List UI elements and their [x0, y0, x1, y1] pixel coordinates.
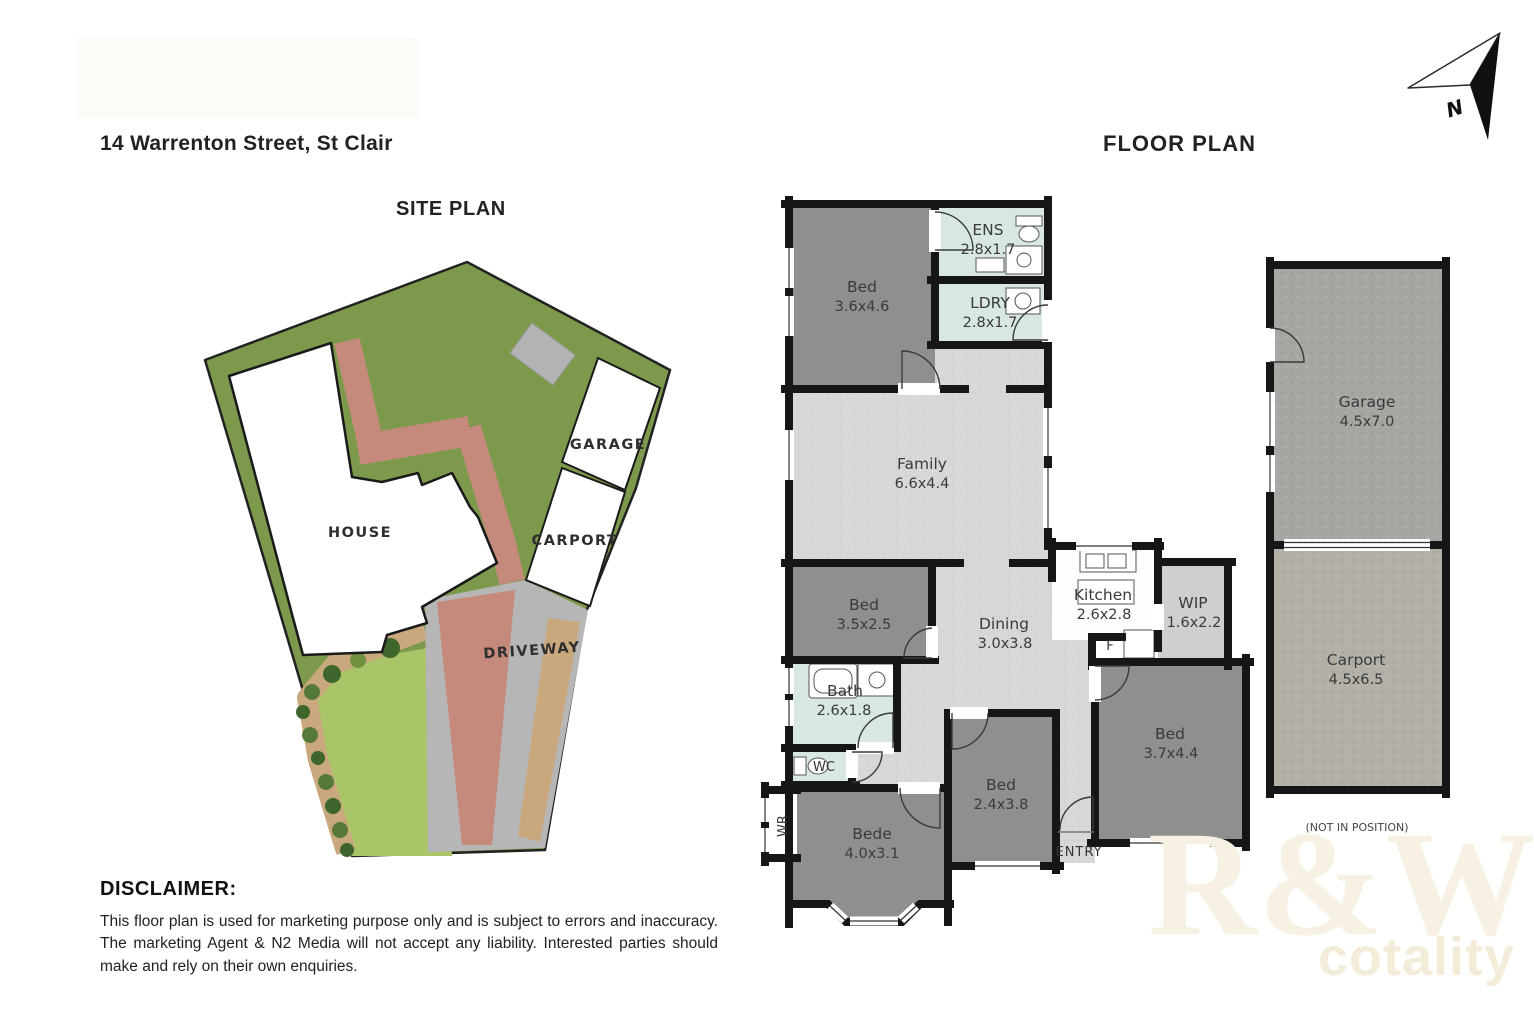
wc-cistern: [794, 757, 806, 775]
floorplan-page: { "header": { "address": "14 Warrenton S…: [0, 0, 1534, 1023]
floor-plan: Bed 3.6x4.6 ENS 2.8x1.7 LDRY 2.8x1.7 Fam…: [755, 185, 1460, 940]
carport-label: Carport: [1327, 651, 1385, 669]
bed1-label: Bed: [847, 278, 877, 296]
garage-dims: 4.5x7.0: [1340, 414, 1395, 430]
disclaimer-title: DISCLAIMER:: [100, 878, 718, 901]
ens-label: ENS: [972, 221, 1003, 239]
ens-cistern: [1016, 216, 1042, 226]
disclaimer-body: This floor plan is used for marketing pu…: [100, 911, 718, 978]
wc-label: WC: [813, 760, 835, 775]
ens-toilet: [1019, 226, 1039, 242]
entry-label: ENTRY: [1055, 845, 1102, 860]
garage-label: Garage: [1339, 393, 1396, 411]
bed4-dims: 3.7x4.4: [1144, 746, 1199, 762]
hall-top-floor: [935, 345, 1048, 389]
kitchen-sink-2: [1108, 554, 1126, 568]
kitchen-label: Kitchen: [1074, 586, 1132, 604]
site-plan-title: SITE PLAN: [396, 198, 506, 221]
carport-dims: 4.5x6.5: [1329, 672, 1384, 688]
not-in-position-note: (NOT IN POSITION): [1305, 821, 1408, 834]
ldry-dims: 2.8x1.7: [963, 315, 1018, 331]
bed1-dims: 3.6x4.6: [835, 299, 890, 315]
hall-floor: [897, 660, 948, 748]
family-label: Family: [897, 455, 947, 473]
bed1-floor: [789, 204, 935, 389]
ldry-basin: [1015, 293, 1031, 309]
property-address: 14 Warrenton Street, St Clair: [100, 132, 393, 156]
north-label: N: [1443, 94, 1467, 122]
ens-shower: [976, 258, 1004, 272]
site-garage-label: GARAGE: [570, 437, 646, 453]
dining-dims: 3.0x3.8: [978, 636, 1033, 652]
wardrobe-label: WR: [776, 815, 791, 837]
kitchen-dims: 2.6x2.8: [1077, 607, 1132, 623]
ens-basin: [1017, 253, 1031, 267]
north-arrow-icon: N: [1398, 22, 1508, 147]
bed3-label: Bed: [986, 776, 1016, 794]
bath-dims: 2.6x1.8: [817, 703, 872, 719]
fridge-space: [1124, 630, 1154, 658]
dining-label: Dining: [979, 615, 1029, 633]
site-carport-label: CARPORT: [532, 533, 619, 549]
bed2-dims: 3.5x2.5: [837, 617, 892, 633]
wip-dims: 1.6x2.2: [1167, 615, 1222, 631]
fridge-label: F: [1106, 639, 1113, 654]
bed4-label: Bed: [1155, 725, 1185, 743]
disclaimer: DISCLAIMER: This floor plan is used for …: [100, 878, 718, 978]
bed2-label: Bed: [849, 596, 879, 614]
bath-basin: [869, 672, 885, 688]
bath-label: Bath: [827, 682, 863, 700]
site-plan: HOUSE GARAGE CARPORT DRIVEWAY: [180, 250, 680, 870]
wip-label: WIP: [1178, 594, 1207, 612]
wip-floor: [1158, 562, 1228, 662]
ens-dims: 2.8x1.7: [961, 242, 1016, 258]
agency-logo-area: [75, 38, 420, 118]
site-house-label: HOUSE: [328, 525, 392, 541]
ldry-label: LDRY: [970, 294, 1010, 312]
floor-plan-title: FLOOR PLAN: [1103, 131, 1256, 157]
bede-dims: 4.0x3.1: [845, 846, 900, 862]
kitchen-sink-1: [1086, 554, 1104, 568]
bed3-dims: 2.4x3.8: [974, 797, 1029, 813]
bede-label: Bede: [852, 825, 892, 843]
family-dims: 6.6x4.4: [895, 476, 950, 492]
